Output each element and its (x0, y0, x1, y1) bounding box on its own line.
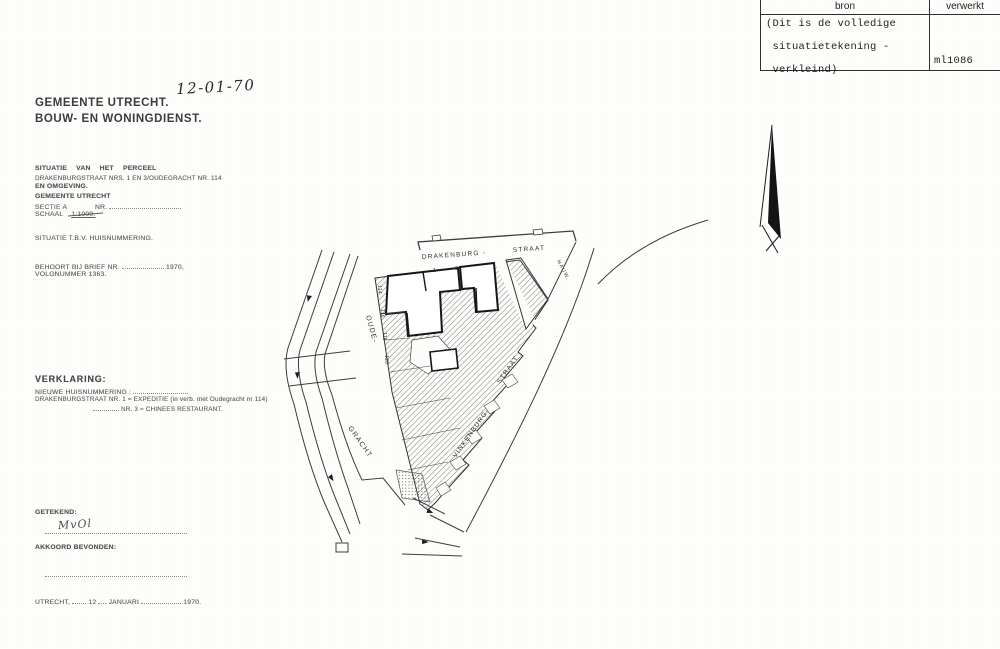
house-number-114: 114 (376, 285, 382, 294)
verklaring-line2: DRAKENBURGSTRAAT NR. 1 = EXPEDITIE (in v… (35, 396, 268, 403)
verklaring-line3-value: = CHINEES RESTAURANT. (140, 406, 223, 413)
date-city: UTRECHT, (35, 599, 70, 606)
small-bold-building (430, 349, 458, 371)
situatie-address: DRAKENBURGSTRAAT NRS. 1 EN 3/OUDEGRACHT … (35, 175, 222, 182)
archive-stamp-table: bron verwerkt (Dit is de volledige situa… (760, 0, 1000, 71)
verklaring-title: VERKLARING: (35, 374, 106, 384)
verklaring-line3-nr: NR. 3 (121, 406, 138, 413)
verklaring-line1: NIEUWE HUISNUMMERING : (35, 387, 188, 396)
brief-line: BEHOORT BIJ BRIEF NR. 1970, (35, 262, 184, 271)
situatie-title: SITUATIE VAN HET PERCEEL (35, 165, 156, 172)
label-oude: OUDE- (364, 315, 378, 344)
stamp-header-row: bron verwerkt (761, 0, 1000, 15)
schaal-line: SCHAAL 1:1000. (35, 211, 95, 218)
volgnummer-line: VOLGNUMMER 1363. (35, 271, 107, 278)
date-month: JANUARI (109, 599, 139, 606)
situation-map: DRAKENBURG - STRAAT NAUW. OUDE- GRACHT V… (280, 212, 740, 617)
house-number-120: 120 (383, 355, 389, 364)
stamp-header-bron: bron (761, 0, 929, 13)
situatie-omgeving: EN OMGEVING. (35, 183, 88, 190)
akkoord-label: AKKOORD BEVONDEN: (35, 544, 116, 551)
verklaring-leader1 (133, 387, 188, 394)
stamp-note: (Dit is de volledige situatietekening - … (766, 19, 896, 77)
nr-dotted-leader (109, 202, 181, 209)
label-drakenburgstraat: DRAKENBURG - (422, 250, 487, 261)
verklaring-leader2 (93, 404, 119, 411)
verklaring-line2-street: DRAKENBURGSTRAAT NR. 1 (35, 396, 126, 403)
date-line: UTRECHT, 12 JANUARI 1970. (35, 597, 201, 606)
stamp-code: ml1086 (934, 55, 973, 67)
schaal-label: SCHAAL (35, 211, 63, 218)
stamp-header-verwerkt: verwerkt (929, 0, 1000, 13)
brief-label: BEHOORT BIJ BRIEF NR. (35, 264, 120, 271)
date-leader2 (98, 597, 106, 604)
brief-year: 1970, (166, 264, 184, 271)
house-number-116: 116 (379, 309, 385, 318)
house-number-118: 118 (381, 332, 387, 341)
situatie-gemeente: GEMEENTE UTRECHT (35, 193, 111, 200)
label-straat-top: STRAAT (513, 245, 546, 254)
date-year: 1970. (183, 599, 201, 606)
nr-label: NR. (95, 204, 107, 211)
brief-dotted-leader (122, 262, 164, 269)
north-arrow-icon (750, 115, 800, 255)
schaal-value-struck: 1:1000. (71, 211, 95, 218)
verklaring-line3: NR. 3 = CHINEES RESTAURANT. (93, 404, 223, 413)
stamp-note-line3: verkleind) (766, 64, 838, 76)
sectie-label: SECTIE A (35, 204, 67, 211)
verklaring-line2-value: = EXPEDITIE (in verb. met Oudegracht nr … (128, 396, 268, 403)
date-day: 12 (88, 599, 96, 606)
getekend-label: GETEKEND: (35, 509, 77, 516)
akkoord-dotted-line (45, 576, 187, 577)
purpose-line: SITUATIE T.B.V. HUISNUMMERING. (35, 235, 153, 242)
building-block (375, 258, 548, 510)
scanned-situation-drawing: { "stamp": { "col_bron": "bron", "col_ve… (0, 0, 1000, 649)
typed-text-column: SITUATIE VAN HET PERCEEL DRAKENBURGSTRAA… (35, 0, 297, 649)
signature-dotted-line (45, 533, 187, 534)
handwritten-signature: MvOl (58, 517, 93, 532)
stamp-note-line1: (Dit is de volledige (766, 18, 896, 30)
date-leader3 (141, 597, 181, 604)
date-leader1 (72, 597, 86, 604)
stamp-note-line2: situatietekening - (766, 41, 890, 53)
parcel-number-1: 1 (433, 268, 436, 274)
parcel-number-3: 3 (455, 266, 458, 272)
verklaring-line1-text: NIEUWE HUISNUMMERING : (35, 389, 131, 396)
sectie-line: SECTIE A NR. (35, 202, 181, 211)
